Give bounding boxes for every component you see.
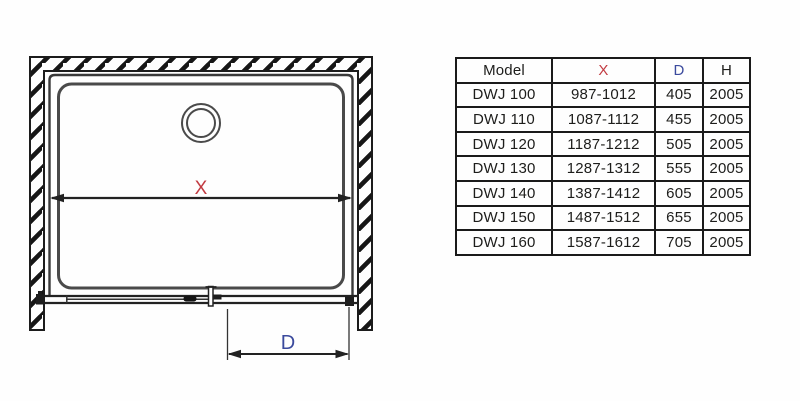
table-cell-d: 705 bbox=[655, 230, 703, 255]
door-width-dimension-d: D bbox=[228, 307, 350, 360]
table-cell-model: DWJ 140 bbox=[456, 181, 552, 206]
table-cell-d: 505 bbox=[655, 132, 703, 157]
spec-table-head: Model X D H bbox=[456, 58, 750, 83]
table-cell-h: 2005 bbox=[703, 206, 750, 231]
drain-circle-inner bbox=[187, 109, 215, 137]
spec-table: Model X D H DWJ 100987-10124052005DWJ 11… bbox=[455, 57, 751, 256]
table-row: DWJ 1201187-12125052005 bbox=[456, 132, 750, 157]
d-dimension-label: D bbox=[281, 332, 295, 354]
table-row: DWJ 1501487-15126552005 bbox=[456, 206, 750, 231]
table-cell-d: 455 bbox=[655, 107, 703, 132]
col-header-d: D bbox=[655, 58, 703, 83]
table-cell-d: 605 bbox=[655, 181, 703, 206]
wall-profile-right bbox=[345, 297, 354, 306]
page: X bbox=[0, 0, 800, 401]
shower-door-top-view-svg: X bbox=[0, 0, 440, 401]
table-cell-model: DWJ 100 bbox=[456, 83, 552, 108]
table-row: DWJ 1301287-13125552005 bbox=[456, 156, 750, 181]
table-row: DWJ 1601587-16127052005 bbox=[456, 230, 750, 255]
width-dimension-x: X bbox=[50, 178, 352, 202]
table-cell-model: DWJ 110 bbox=[456, 107, 552, 132]
table-cell-x: 1087-1112 bbox=[552, 107, 655, 132]
col-header-x: X bbox=[552, 58, 655, 83]
table-cell-x: 1187-1212 bbox=[552, 132, 655, 157]
table-row: DWJ 1401387-14126052005 bbox=[456, 181, 750, 206]
header-row: Model X D H bbox=[456, 58, 750, 83]
table-row: DWJ 1101087-11124552005 bbox=[456, 107, 750, 132]
table-cell-x: 1287-1312 bbox=[552, 156, 655, 181]
table-cell-x: 987-1012 bbox=[552, 83, 655, 108]
door-track bbox=[44, 296, 358, 304]
table-cell-h: 2005 bbox=[703, 107, 750, 132]
table-cell-x: 1487-1512 bbox=[552, 206, 655, 231]
table-cell-h: 2005 bbox=[703, 83, 750, 108]
table-cell-h: 2005 bbox=[703, 132, 750, 157]
table-cell-h: 2005 bbox=[703, 230, 750, 255]
x-dimension-label: X bbox=[195, 178, 208, 199]
table-cell-model: DWJ 130 bbox=[456, 156, 552, 181]
spec-table-body: DWJ 100987-10124052005DWJ 1101087-111245… bbox=[456, 83, 750, 255]
table-cell-model: DWJ 150 bbox=[456, 206, 552, 231]
table-cell-h: 2005 bbox=[703, 156, 750, 181]
col-header-model: Model bbox=[456, 58, 552, 83]
table-cell-x: 1587-1612 bbox=[552, 230, 655, 255]
table-cell-h: 2005 bbox=[703, 181, 750, 206]
spec-table-container: Model X D H DWJ 100987-10124052005DWJ 11… bbox=[455, 57, 751, 256]
table-cell-d: 655 bbox=[655, 206, 703, 231]
table-cell-x: 1387-1412 bbox=[552, 181, 655, 206]
table-cell-model: DWJ 160 bbox=[456, 230, 552, 255]
table-row: DWJ 100987-10124052005 bbox=[456, 83, 750, 108]
table-cell-d: 555 bbox=[655, 156, 703, 181]
technical-drawing: X bbox=[0, 0, 440, 401]
col-header-h: H bbox=[703, 58, 750, 83]
door-handle bbox=[184, 296, 197, 302]
table-cell-d: 405 bbox=[655, 83, 703, 108]
table-cell-model: DWJ 120 bbox=[456, 132, 552, 157]
